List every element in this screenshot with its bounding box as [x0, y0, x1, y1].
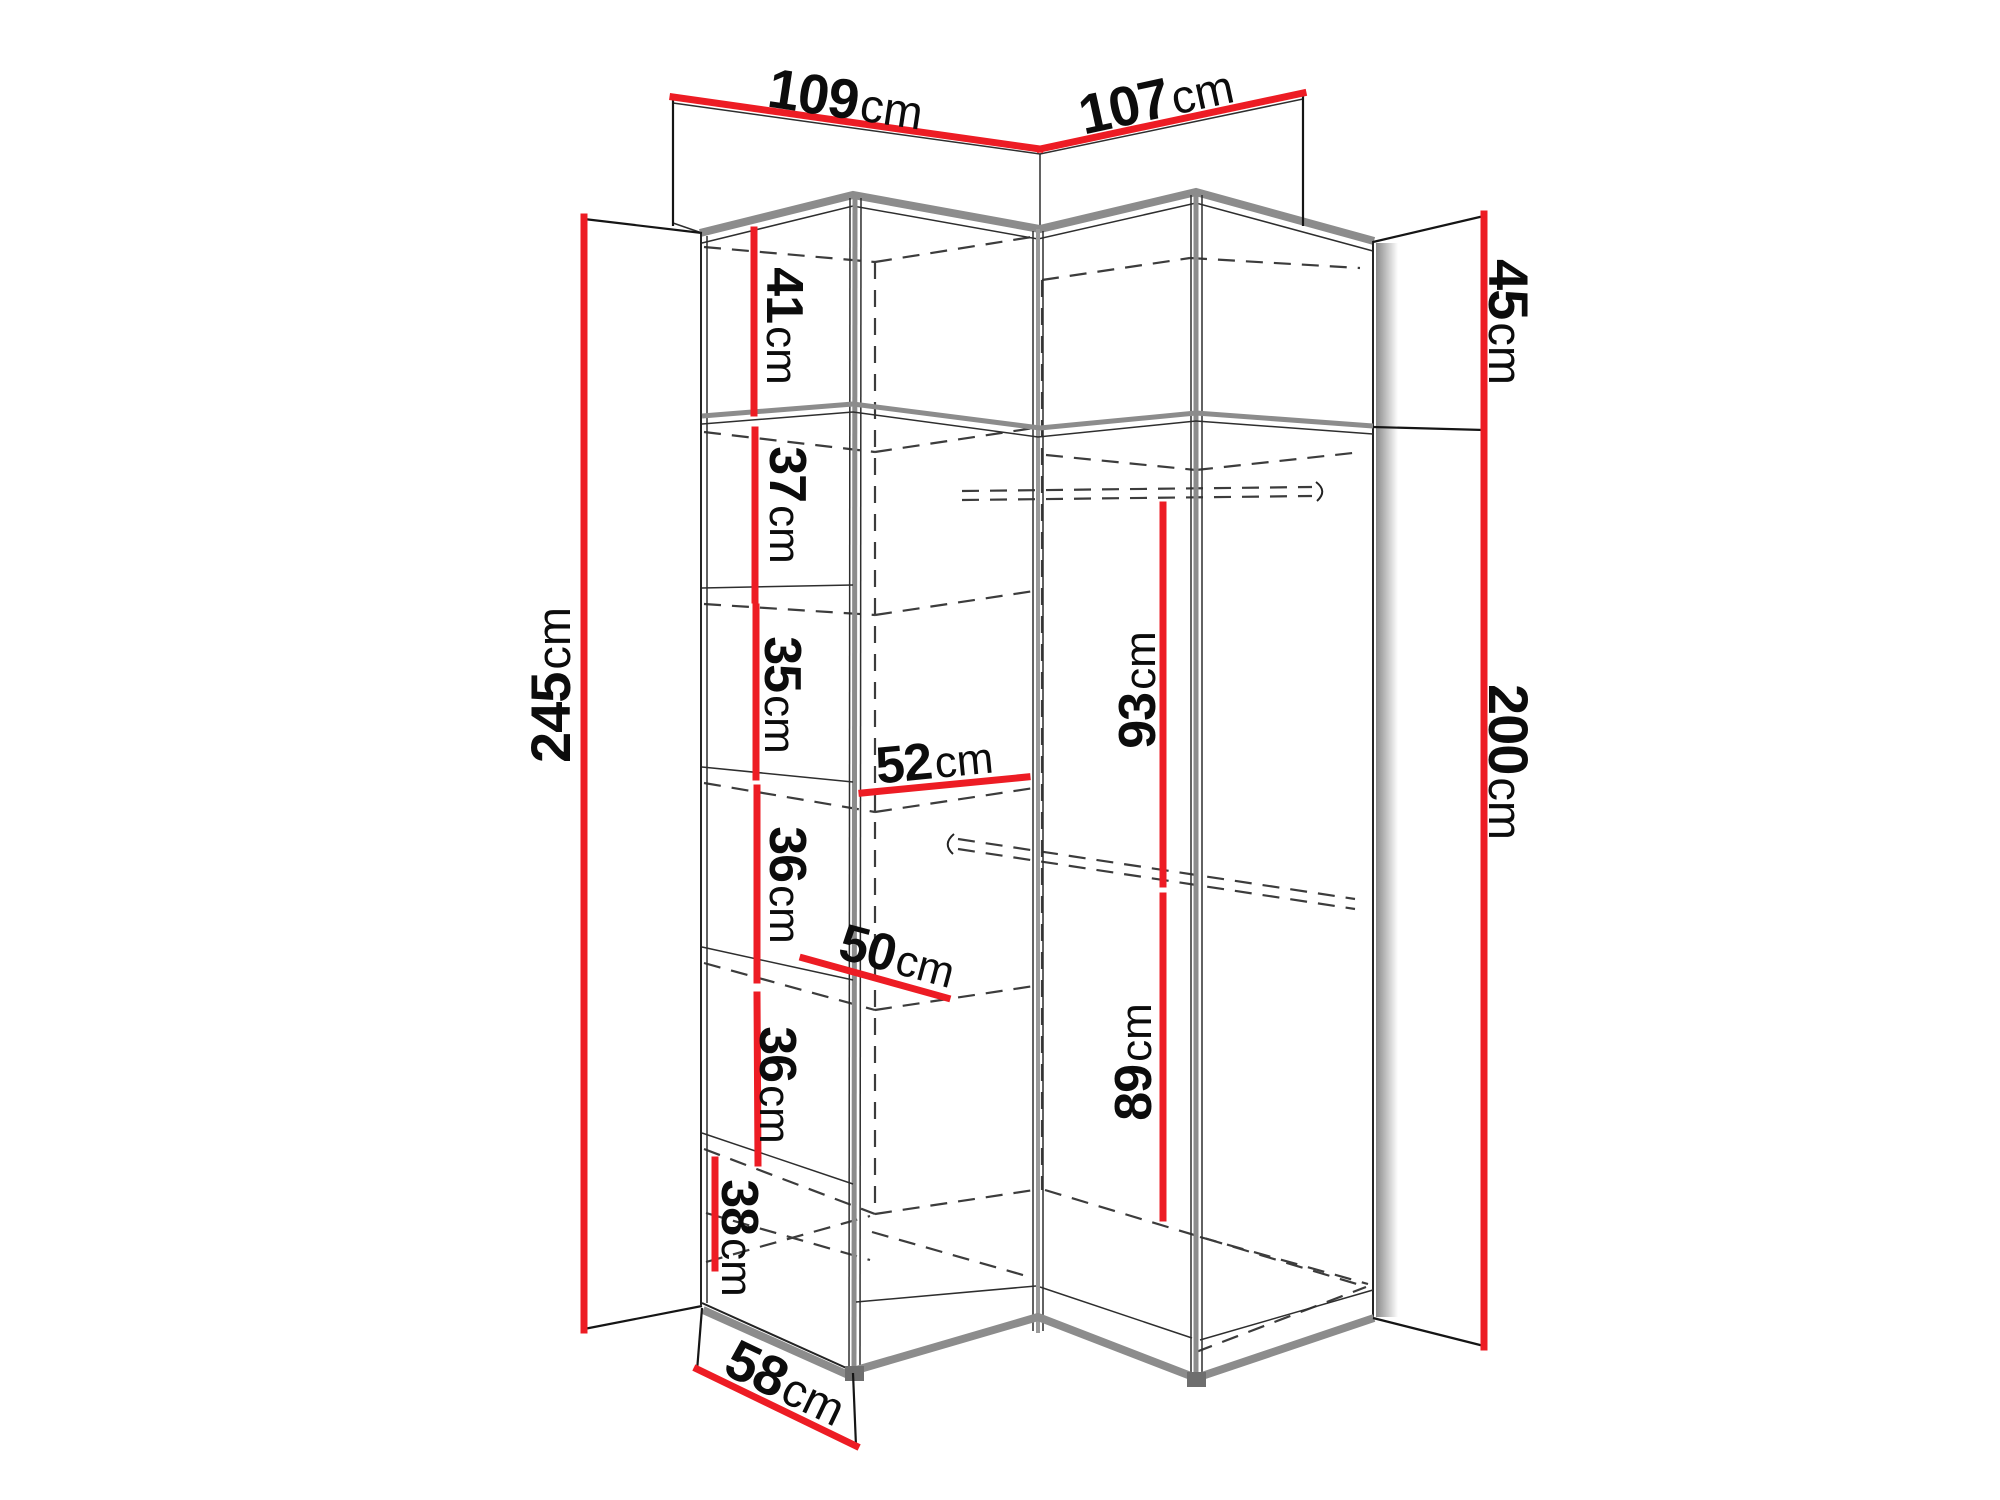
clothes-rail-upper — [962, 487, 1312, 491]
label-89cm: 89cm — [1105, 1003, 1163, 1121]
label-107cm: 107cm — [1073, 52, 1239, 147]
top-shelf-back-edge — [1196, 452, 1362, 470]
tick-58-right — [853, 1373, 856, 1446]
shelf-front-edge — [702, 767, 853, 782]
rail-end-hook — [948, 834, 954, 854]
diagram-canvas: 109cm 107cm 245cm 45cm 200cm 41cm 37cm 3… — [0, 0, 2000, 1500]
top-box-back-edge — [1042, 258, 1190, 280]
floor-front-edge — [1200, 1290, 1373, 1340]
label-41cm: 41cm — [755, 267, 813, 385]
top-shelf-back-edge — [875, 428, 1034, 452]
tick-245-bottom — [584, 1306, 702, 1329]
right-side-shadow — [1376, 243, 1398, 1317]
tick-45-top — [1373, 216, 1484, 242]
clothes-rail-lower — [958, 849, 1355, 909]
tick-58-left — [697, 1308, 702, 1371]
floor-dashed-line — [1196, 1287, 1366, 1352]
label-37cm: 37cm — [758, 446, 816, 564]
label-38cm: 38cm — [710, 1179, 768, 1297]
label-109cm: 109cm — [764, 56, 928, 142]
label-245cm: 245cm — [519, 607, 582, 763]
label-35cm: 35cm — [753, 636, 811, 754]
label-93cm: 93cm — [1109, 631, 1167, 749]
shelf-front-edge — [702, 585, 853, 588]
top-box-back-edge — [875, 236, 1038, 262]
clothes-rail-upper — [962, 496, 1312, 500]
shelf-dashed-line — [875, 1190, 1034, 1214]
label-36cm-upper: 36cm — [758, 826, 816, 944]
clothes-rail-lower — [958, 839, 1355, 899]
top-shelf-back-edge — [1046, 455, 1196, 470]
label-200cm: 200cm — [1477, 684, 1540, 840]
base-front — [853, 1317, 1374, 1378]
top-box-back-edge — [1190, 258, 1360, 268]
floor-dashed-line — [872, 1232, 1030, 1277]
floor-dashed-line — [1200, 1237, 1368, 1284]
tick-200-bottom — [1373, 1318, 1484, 1346]
gable-left — [854, 197, 855, 1371]
wardrobe-foot — [1187, 1372, 1206, 1387]
shelf-dashed-line — [875, 591, 1034, 615]
rail-end-hook — [1316, 482, 1322, 501]
label-45cm: 45cm — [1477, 259, 1540, 385]
gable-left-edge — [860, 198, 861, 1368]
wardrobe-dimension-diagram: 109cm 107cm 245cm 45cm 200cm 41cm 37cm 3… — [0, 0, 2000, 1500]
floor-front-edge — [856, 1286, 1036, 1302]
shelf-dashed-line — [875, 986, 1034, 1010]
gable-left-edge — [849, 198, 850, 1370]
wardrobe-foot — [845, 1366, 864, 1381]
tick-245-top — [584, 219, 702, 233]
label-36cm-lower: 36cm — [748, 1026, 806, 1144]
